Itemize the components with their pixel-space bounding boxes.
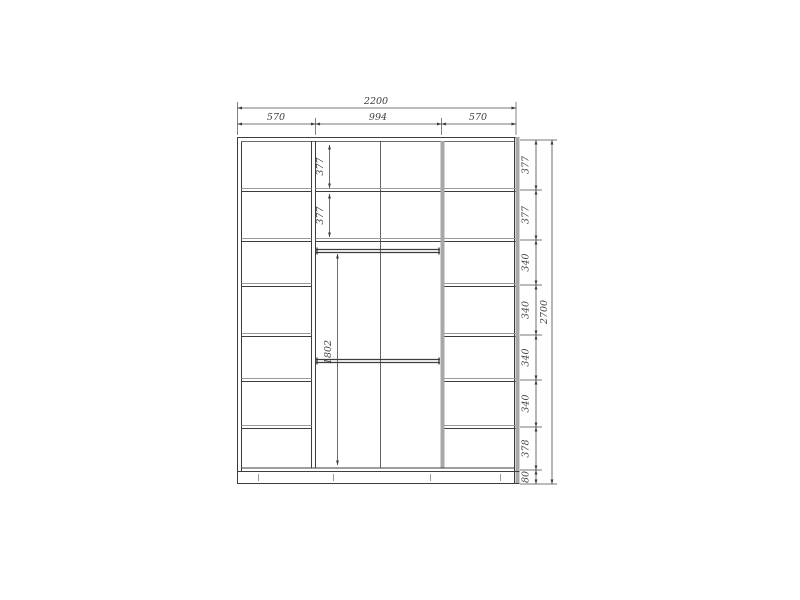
dim-label-middle-shelf-1: 377 (315, 156, 326, 175)
dim-label-right-width: 570 (469, 112, 487, 123)
bottom-panel-and-base (237, 468, 520, 484)
dim-label-total-height: 2700 (539, 300, 550, 325)
right-dimensions: 377 377 340 340 340 340 378 80 2700 (520, 140, 557, 484)
dim-label-left-width: 570 (267, 112, 285, 123)
drawing-canvas: 2200 570 994 570 377 377 340 340 340 340… (0, 0, 800, 600)
right-column-shelves (445, 189, 516, 429)
upper-hanging-rod (316, 248, 440, 255)
dim-label-middle-width: 994 (369, 112, 387, 123)
dim-label-total-width: 2200 (363, 96, 388, 107)
dim-label-right-seg-8: 80 (521, 471, 532, 483)
dim-label-right-seg-3: 340 (521, 253, 532, 271)
dim-label-right-seg-7: 378 (521, 439, 532, 457)
wardrobe-technical-drawing: 2200 570 994 570 377 377 340 340 340 340… (0, 0, 800, 600)
dim-label-right-seg-2: 377 (521, 205, 532, 224)
dim-label-middle-shelf-2: 377 (315, 205, 326, 224)
dim-label-open-height: 1802 (323, 340, 334, 364)
right-wall-panel (516, 137, 520, 484)
dim-label-right-seg-4: 340 (521, 301, 532, 319)
middle-top-shelves (316, 189, 441, 242)
dim-label-right-seg-5: 340 (521, 348, 532, 366)
middle-dimensions: 377 377 1802 (315, 145, 338, 465)
right-divider-panel (441, 141, 445, 468)
left-column-shelves (242, 189, 312, 429)
cabinet-structure (237, 137, 520, 484)
dim-label-right-seg-1: 377 (521, 155, 532, 174)
top-dimensions: 2200 570 994 570 (238, 96, 517, 135)
dim-label-right-seg-6: 340 (521, 394, 532, 412)
lower-hanging-rod (316, 358, 440, 365)
